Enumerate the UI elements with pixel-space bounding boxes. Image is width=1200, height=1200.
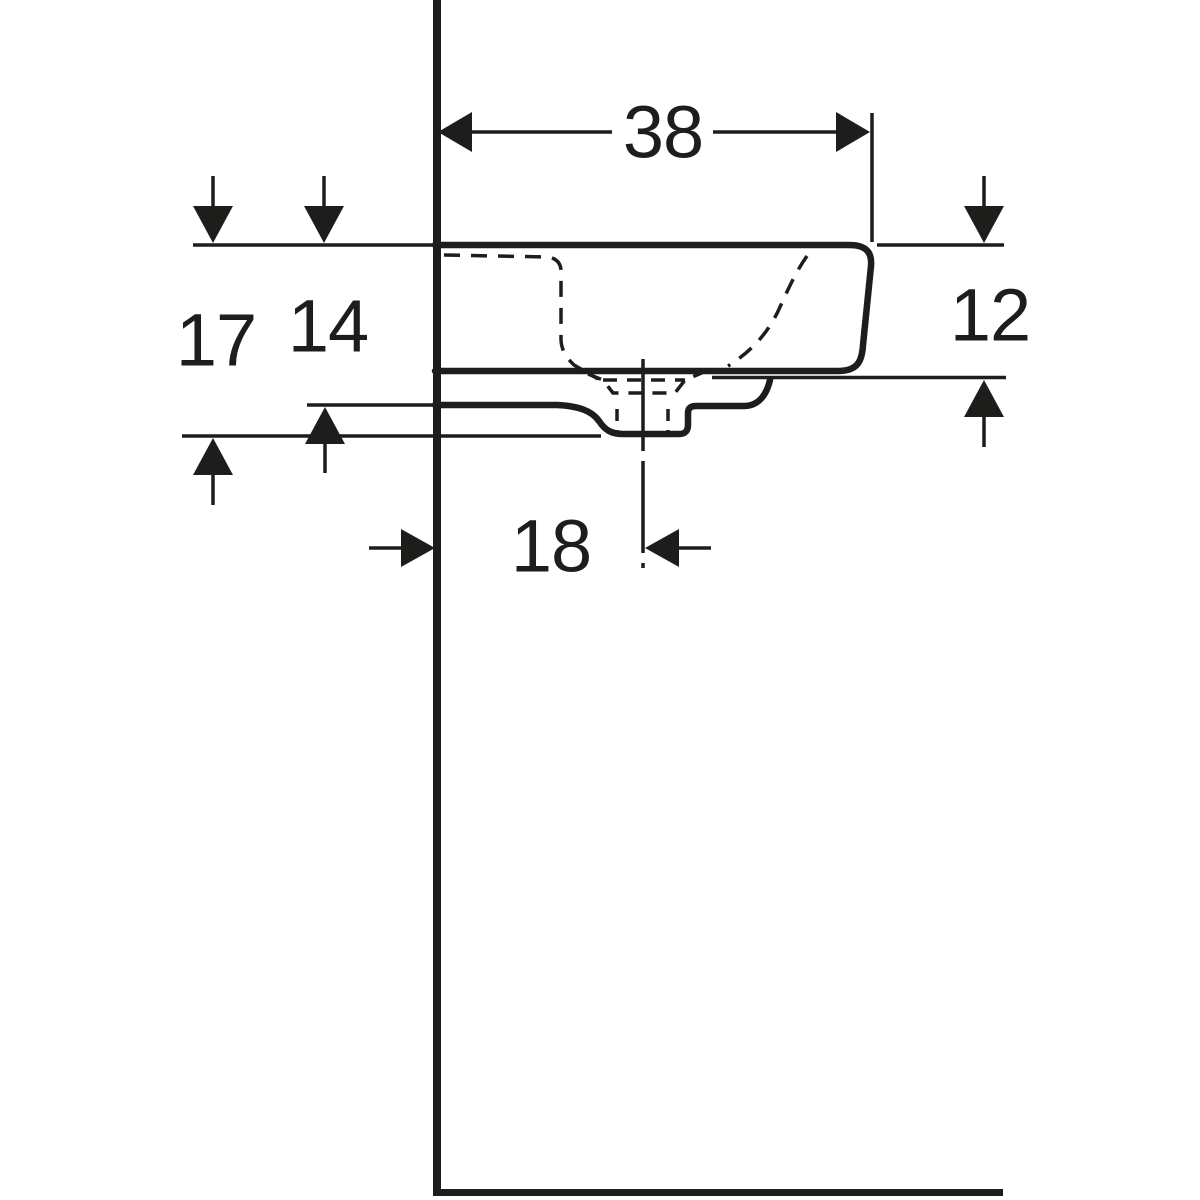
dimension-18: 18	[369, 505, 711, 588]
dim-14-label: 14	[288, 285, 368, 368]
dim-38-label: 38	[623, 91, 703, 174]
dim-17-label: 17	[176, 299, 256, 382]
dim-18-label: 18	[511, 505, 591, 588]
dim-18-arrow-right-icon	[401, 529, 435, 567]
diagram-canvas: 38 17 14 12	[0, 0, 1200, 1200]
dim-18-arrow-left-icon	[645, 529, 679, 567]
dim-12-label: 12	[950, 274, 1030, 357]
basin-underside-outline	[435, 380, 770, 434]
dim-17-arrow-up-icon	[193, 438, 233, 475]
dimension-38: 38	[438, 91, 872, 243]
dim-38-arrow-right-icon	[836, 112, 870, 152]
dim-12-arrow-up-icon	[964, 380, 1004, 417]
dim-14-arrow-down-icon	[304, 206, 344, 243]
dim-38-arrow-left-icon	[438, 112, 472, 152]
dim-12-arrow-down-icon	[964, 206, 1004, 243]
technical-drawing-svg: 38 17 14 12	[0, 0, 1200, 1200]
dim-17-arrow-down-icon	[193, 206, 233, 243]
bowl-hidden-edge-left	[444, 255, 598, 379]
dimension-17-14-top	[193, 176, 433, 245]
dimension-14: 14	[288, 285, 433, 474]
basin-body-outline	[435, 245, 871, 371]
bowl-hidden-edge-right	[728, 256, 807, 366]
dim-14-arrow-up-icon	[305, 407, 345, 444]
